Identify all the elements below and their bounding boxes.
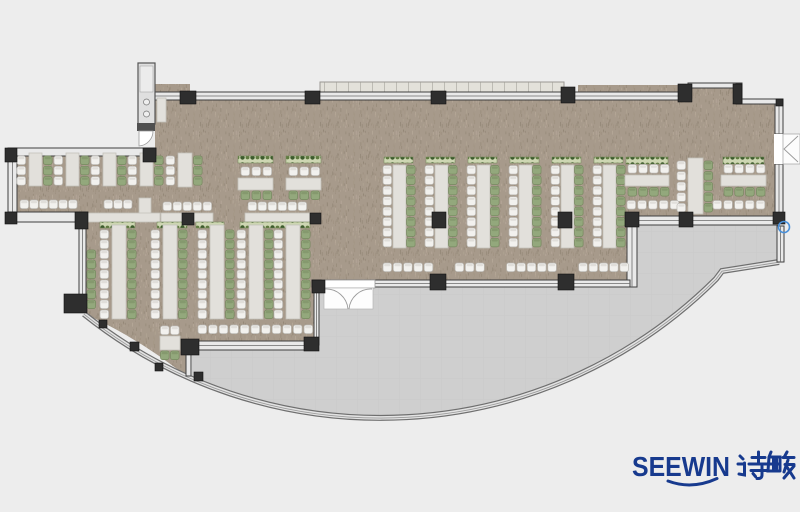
svg-text:SEEWIN: SEEWIN xyxy=(632,451,730,482)
